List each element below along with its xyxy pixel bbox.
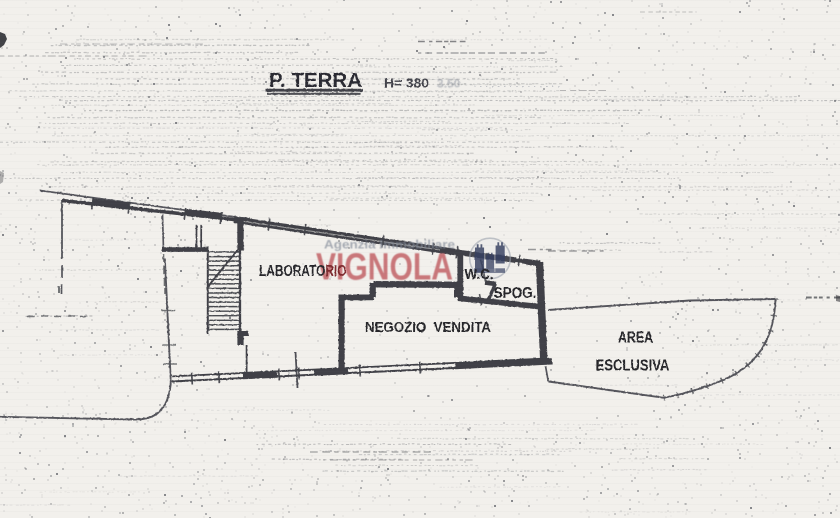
svg-text:NEGOZIO VENDITA: NEGOZIO VENDITA: [365, 319, 491, 336]
svg-text:ESCLUSIVA: ESCLUSIVA: [596, 358, 670, 375]
svg-text:LABORATORIO: LABORATORIO: [259, 263, 347, 280]
svg-text:AREA: AREA: [618, 330, 653, 347]
svg-text:P. TERRA: P. TERRA: [269, 70, 362, 92]
svg-text:SPOG.: SPOG.: [494, 285, 537, 302]
svg-text:W.C.: W.C.: [465, 266, 494, 283]
